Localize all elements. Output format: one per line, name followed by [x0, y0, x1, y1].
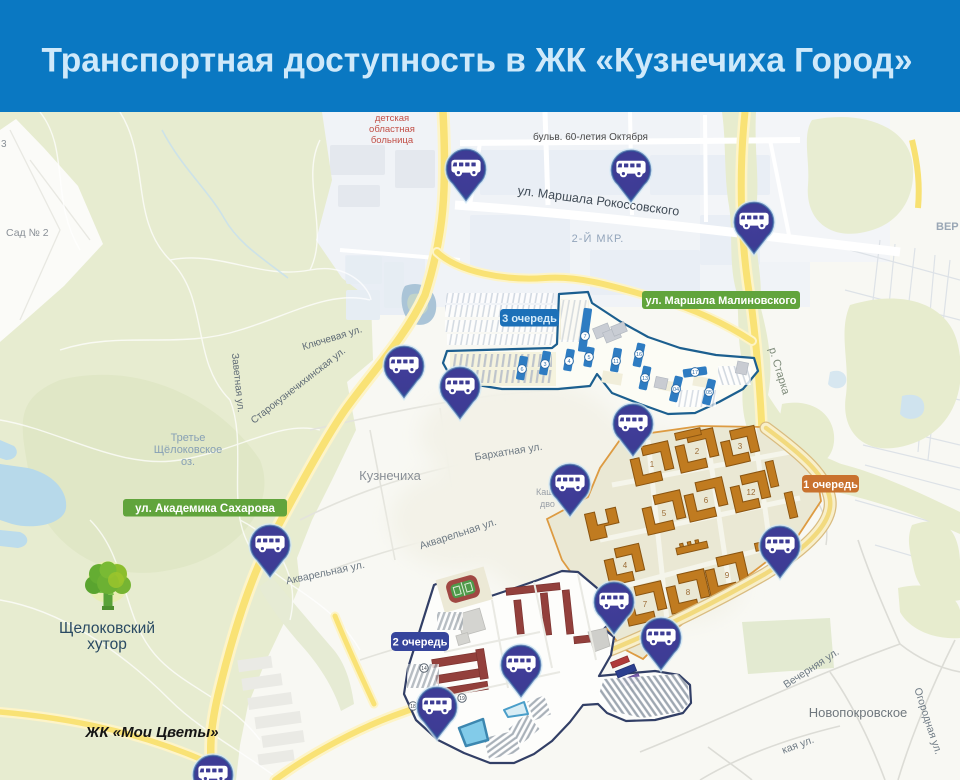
svg-text:Щёлоковское: Щёлоковское	[154, 444, 223, 456]
svg-text:ЖК «Мои Цветы»: ЖК «Мои Цветы»	[84, 724, 218, 741]
svg-text:05: 05	[706, 390, 712, 396]
svg-text:5: 5	[587, 355, 590, 361]
svg-text:1 очередь: 1 очередь	[803, 479, 858, 491]
svg-text:Кузнечиха: Кузнечиха	[359, 468, 421, 483]
svg-text:8: 8	[686, 588, 691, 597]
svg-text:3: 3	[543, 362, 546, 368]
svg-text:Новопокровское: Новопокровское	[809, 705, 908, 720]
svg-text:областная: областная	[369, 124, 415, 135]
svg-text:19: 19	[459, 696, 465, 702]
svg-text:детская: детская	[375, 113, 409, 124]
svg-text:Транспортная доступность в ЖК: Транспортная доступность в ЖК «Кузнечиха…	[42, 42, 913, 80]
svg-text:12: 12	[747, 488, 756, 497]
svg-text:5: 5	[662, 509, 667, 518]
svg-text:дво: дво	[540, 499, 555, 509]
svg-text:3: 3	[1, 139, 7, 150]
svg-text:16: 16	[636, 352, 642, 358]
svg-text:2: 2	[695, 447, 700, 456]
svg-text:ВЕР: ВЕР	[936, 221, 959, 233]
svg-text:9: 9	[725, 571, 730, 580]
svg-text:17: 17	[692, 370, 698, 376]
svg-text:2 очередь: 2 очередь	[393, 637, 448, 649]
svg-text:ул. Маршала Малиновского: ул. Маршала Малиновского	[645, 295, 796, 307]
svg-text:4: 4	[623, 561, 628, 570]
svg-text:6: 6	[704, 496, 709, 505]
svg-text:13: 13	[642, 376, 648, 382]
svg-text:Сад № 2: Сад № 2	[6, 227, 49, 239]
svg-text:Щелоковский: Щелоковский	[59, 620, 155, 637]
svg-text:14: 14	[421, 666, 427, 672]
svg-text:1: 1	[650, 460, 655, 469]
svg-text:04: 04	[673, 387, 679, 393]
svg-text:Третье: Третье	[171, 432, 206, 444]
svg-text:11: 11	[613, 359, 619, 365]
svg-text:7: 7	[643, 600, 648, 609]
svg-text:оз.: оз.	[181, 456, 195, 468]
svg-text:4: 4	[567, 359, 570, 365]
svg-text:ул. Академика Сахарова: ул. Академика Сахарова	[135, 503, 275, 515]
svg-text:хутор: хутор	[87, 636, 127, 653]
svg-text:больница: больница	[371, 135, 414, 146]
svg-text:7: 7	[583, 334, 586, 340]
svg-text:3: 3	[738, 442, 743, 451]
svg-text:бульв. 60-летия Октября: бульв. 60-летия Октября	[533, 131, 648, 143]
svg-text:6: 6	[520, 367, 523, 373]
svg-text:3 очередь: 3 очередь	[502, 313, 557, 325]
svg-text:18: 18	[410, 704, 416, 710]
svg-text:2-Й МКР.: 2-Й МКР.	[572, 232, 625, 245]
